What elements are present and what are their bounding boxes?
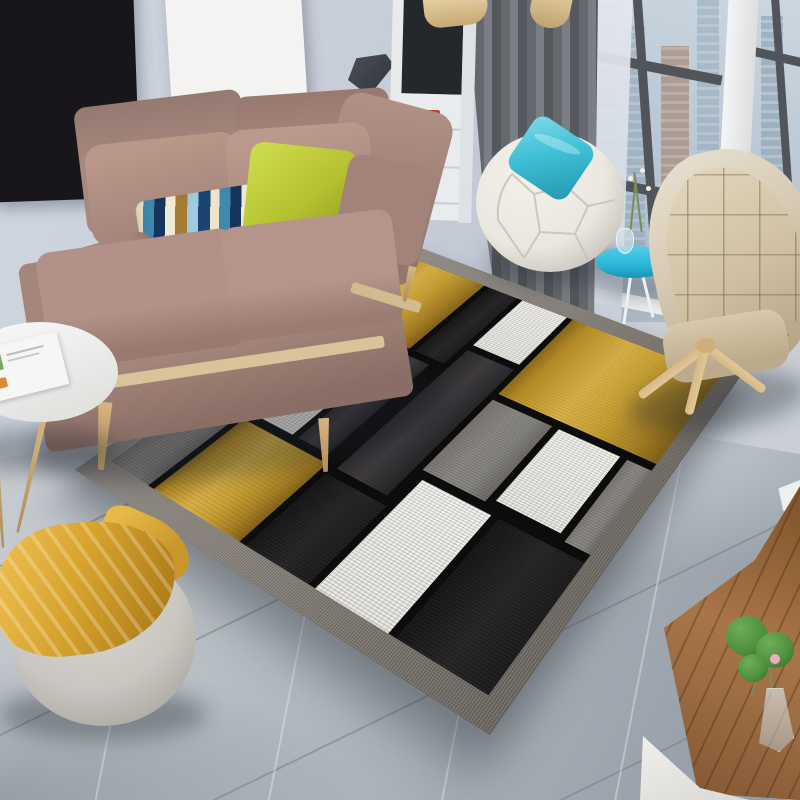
magazine-photo: [0, 377, 8, 389]
glass-vase: [616, 228, 634, 254]
magazine-photo: [0, 354, 4, 372]
plant-flower: [770, 654, 780, 664]
poster-line: DO: [0, 0, 134, 5]
plant-pom: [738, 654, 768, 682]
poster-line: LOVE: [163, 0, 301, 8]
sprig-bud: [640, 168, 645, 173]
sofa-seat-cushion-right: [220, 208, 405, 342]
chair-leg-hub: [696, 338, 716, 353]
sprig-bud: [646, 186, 651, 191]
living-room-photo: LOVE WHAT YOU DO DO WHAT YOU LOVE: [0, 0, 800, 800]
sprig-bud: [628, 176, 633, 181]
